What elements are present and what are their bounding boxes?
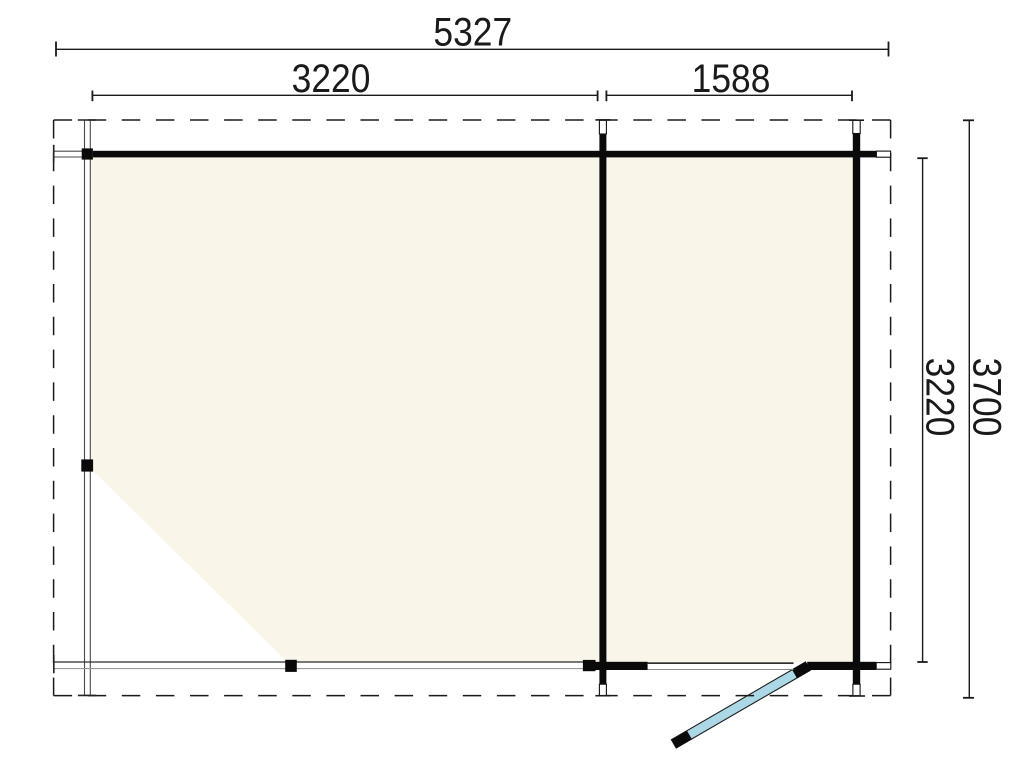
svg-text:3220: 3220 <box>917 358 961 437</box>
svg-text:3220: 3220 <box>292 57 371 101</box>
svg-text:5327: 5327 <box>433 10 512 54</box>
svg-text:1588: 1588 <box>692 57 771 101</box>
svg-text:3700: 3700 <box>964 358 1008 437</box>
